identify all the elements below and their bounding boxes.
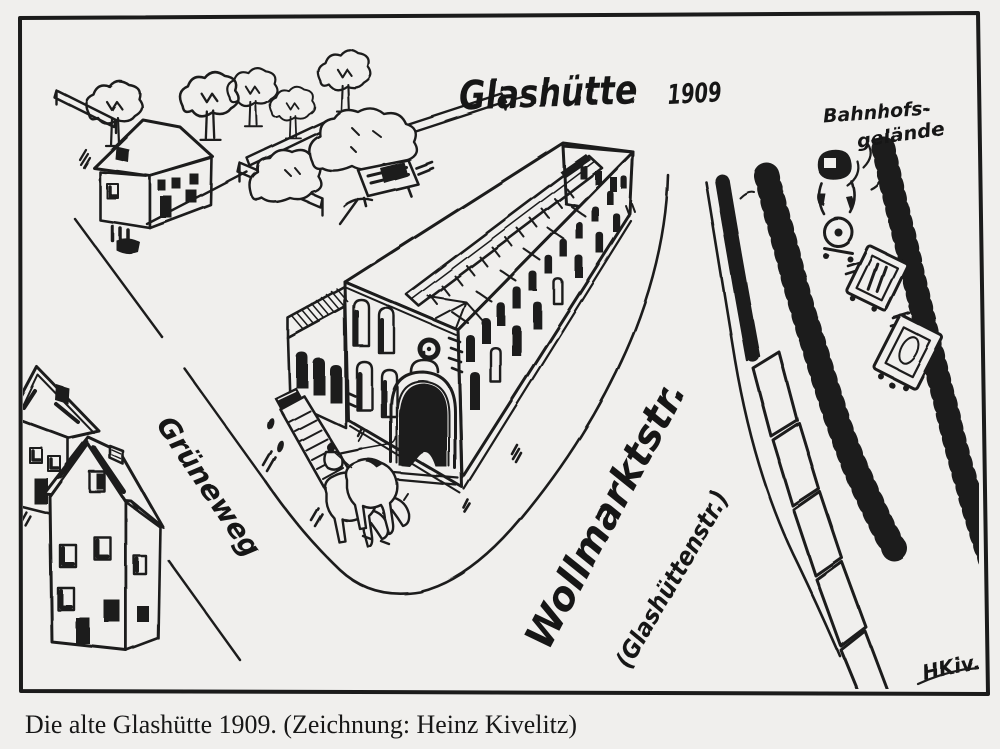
drawing-caption: Die alte Glashütte 1909. (Zeichnung: Hei… [25, 710, 577, 739]
illustration-canvas: Glashütte 1909 Bahnhofs- gelände Grünewe… [0, 0, 1000, 749]
title-year-label: 1909 [667, 77, 723, 111]
factory-clock [418, 338, 441, 361]
title-label: Glashütte [459, 68, 638, 120]
glashuette-drawing: Glashütte 1909 Bahnhofs- gelände Grünewe… [0, 0, 1000, 749]
